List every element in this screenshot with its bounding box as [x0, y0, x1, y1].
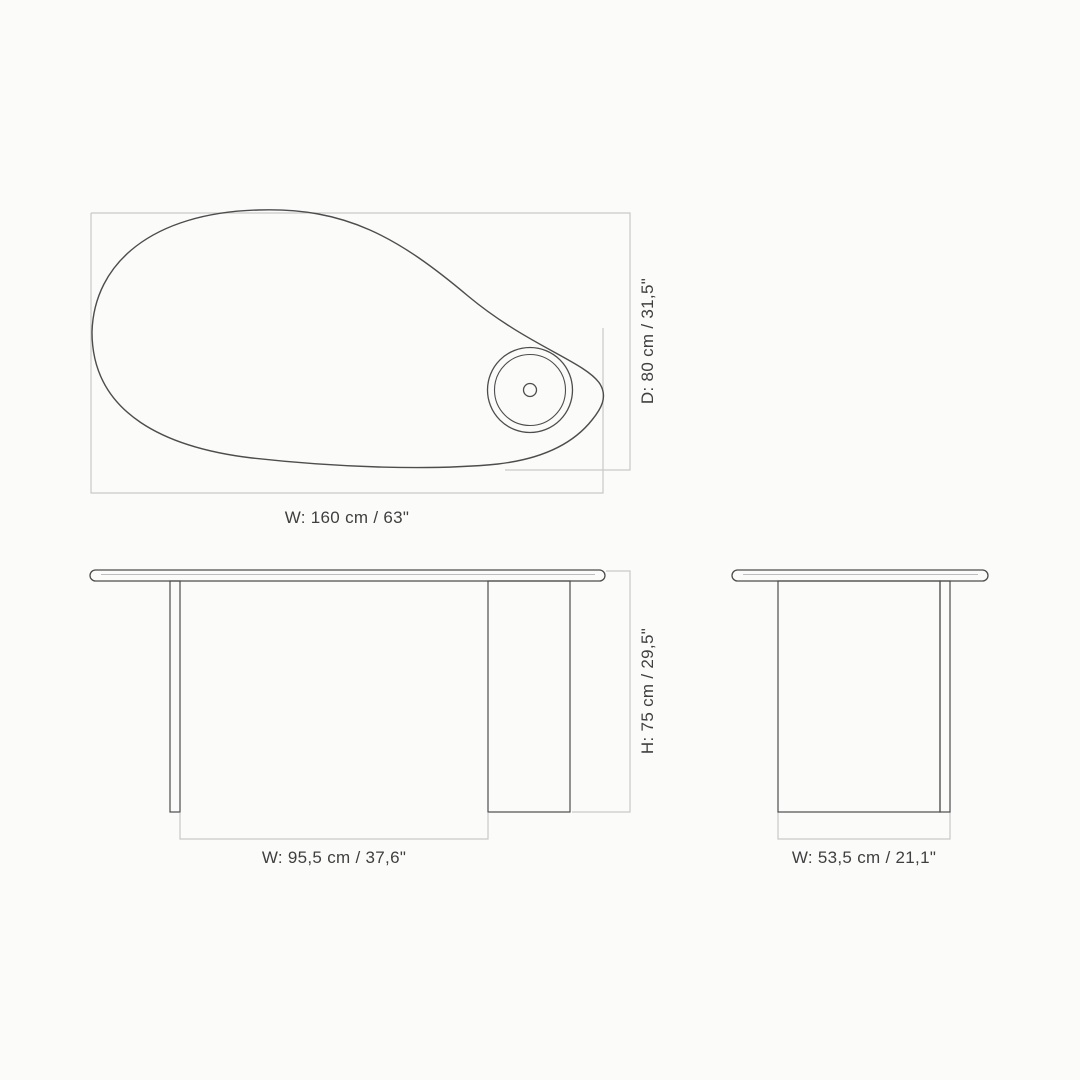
front-view-height-label: H: 75 cm / 29,5": [638, 628, 657, 754]
page-background: [0, 0, 1080, 1080]
top-view-depth-label: D: 80 cm / 31,5": [638, 278, 657, 404]
front-view-width-label: W: 95,5 cm / 37,6": [262, 848, 406, 867]
side-view-width-label: W: 53,5 cm / 21,1": [792, 848, 936, 867]
top-view-width-label: W: 160 cm / 63": [285, 508, 410, 527]
dimension-drawing-page: W: 160 cm / 63" D: 80 cm / 31,5" W: 95,5…: [0, 0, 1080, 1080]
desk-dimension-drawing: W: 160 cm / 63" D: 80 cm / 31,5" W: 95,5…: [0, 0, 1080, 1080]
